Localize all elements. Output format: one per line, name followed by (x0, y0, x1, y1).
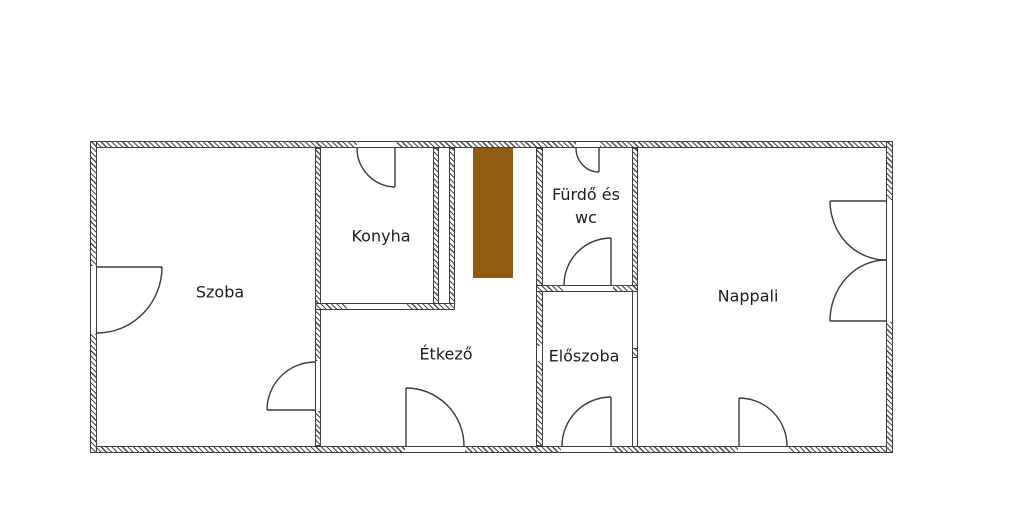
wall-hall-right-tick (632, 348, 638, 358)
room-label-eloszoba: Előszoba (549, 344, 620, 367)
wall-chase (449, 148, 455, 308)
wall-outer-top (90, 141, 893, 148)
room-label-furdo-wc: Fürdő és wc (552, 183, 620, 229)
room-label-konyha: Konyha (351, 224, 410, 247)
door-opening-nappali-double (886, 200, 893, 322)
door-opening-etkezo-bottom (405, 446, 465, 453)
wall-hall-right-upper (632, 148, 638, 292)
door-konyha-top (357, 148, 395, 187)
door-szoba-exterior (97, 267, 162, 333)
door-opening-furdo-top (576, 141, 600, 148)
door-opening-furdo-bottom (563, 285, 613, 292)
floor-plan-canvas: Szoba Konyha Fürdő és wc Étkező Előszoba… (0, 0, 1024, 528)
door-opening-szoba-etkezo (315, 361, 321, 411)
door-szoba-etkezo (267, 362, 315, 410)
room-label-nappali: Nappali (718, 284, 779, 307)
passage-konyha-etkezo (347, 303, 407, 310)
door-nappali-double-top (830, 201, 886, 260)
door-nappali-double-bottom (830, 260, 886, 321)
door-etkezo-bottom (406, 388, 464, 446)
door-opening-szoba-exterior (90, 266, 97, 334)
passage-etkezo-eloszoba (536, 346, 543, 361)
chimney-block (473, 148, 513, 278)
room-label-szoba: Szoba (196, 280, 244, 303)
door-eloszoba-bottom (562, 397, 611, 446)
wall-hall-right-lower (632, 292, 638, 446)
room-label-etkezo: Étkező (419, 342, 472, 365)
door-opening-eloszoba-bottom (561, 446, 613, 453)
door-nappali-bottom (739, 398, 787, 446)
door-opening-konyha-top (357, 141, 397, 148)
door-furdo-bottom (564, 238, 611, 285)
door-furdo-top (576, 148, 599, 172)
wall-hall-left (536, 148, 543, 446)
wall-konyha-right (433, 148, 439, 308)
door-opening-nappali-bottom (738, 446, 789, 453)
